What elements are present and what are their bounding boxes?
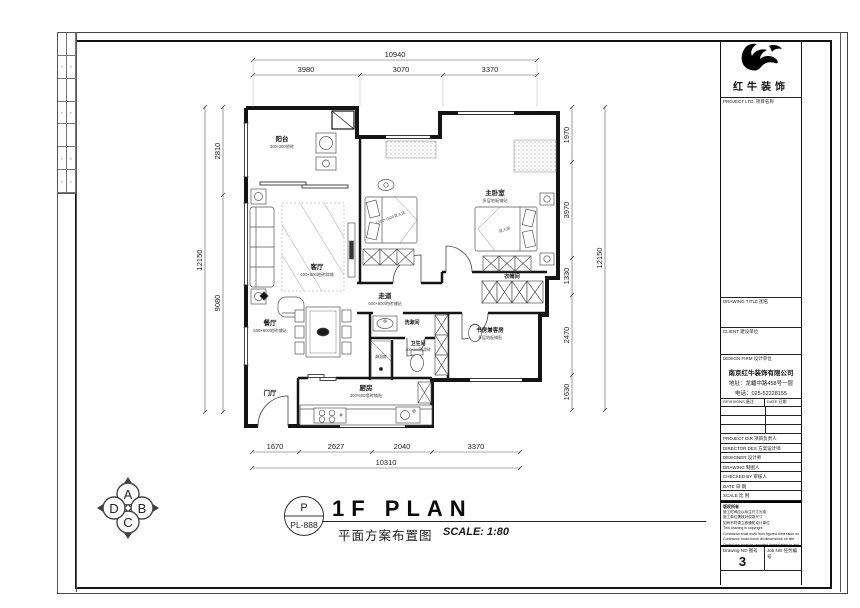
compass-rose: A B C D [96,476,160,540]
field-drawing-title: DRAWING TITLE 图名 [721,298,801,328]
svg-text:600×600地砖铺贴: 600×600地砖铺贴 [253,327,286,334]
sheet-right-line [840,32,841,592]
bay-windows [386,140,556,172]
tile-rug [282,203,344,291]
plan-scale: SCALE: 1:80 [443,526,509,538]
field-drawing-by: DRAWING 制图人 [721,463,801,473]
speaker-box [251,189,266,204]
revisions-date-label: DATE 日期 [765,399,801,406]
svg-text:300*300地砖: 300*300地砖 [270,143,294,150]
tv-panel [348,223,355,277]
title-underline [322,521,706,522]
strip-cell [58,79,76,102]
revisions-label: REVISIONS 备注 [721,399,765,406]
svg-text:2810: 2810 [213,143,222,160]
svg-text:书房兼客房: 书房兼客房 [476,326,504,334]
field-date: DATE 日 期 [721,482,801,492]
balcony-sink [316,157,336,170]
stool [378,180,394,191]
svg-text:淋浴房: 淋浴房 [375,354,387,359]
svg-text:10940: 10940 [385,50,406,59]
svg-text:D: D [109,501,118,516]
firm-logo-text: 红牛装饰 [721,78,801,93]
svg-text:1670: 1670 [267,442,284,451]
bull-logo-icon [733,40,789,76]
field-drawing-title-label: DRAWING TITLE 图名 [723,299,768,305]
svg-text:300*300防滑砖: 300*300防滑砖 [405,347,431,352]
svg-text:300*600墙砖铺贴: 300*600墙砖铺贴 [350,392,382,399]
floor-plan: 10940 3980 3070 3370 12150 2810 9080 197… [190,45,640,485]
strip-cell: ▪▪ [58,56,76,79]
room-labels: 阳台 300*300地砖 客厅 600×600地砖斜铺 主卧室 多层地板铺贴 走… [253,134,519,399]
svg-text:衣帽间: 衣帽间 [504,272,520,280]
drawing-number-row: Drawing NO 图号 3 Job NO 任务编号 [721,547,801,571]
plan-subtitle: 平面方案布置图 [338,525,433,544]
svg-text:多层地板铺贴: 多层地板铺贴 [482,197,507,204]
field-client: CLIENT 建设单位 [721,328,801,355]
revision-row [721,416,801,425]
firm-address: 地址：龙蟠中路458号一层 [721,379,801,387]
svg-text:客厅: 客厅 [310,262,325,271]
revisions-header: REVISIONS 备注 DATE 日期 [721,399,801,407]
revision-strip: ▪▪ ▪▪ ▪▪ ▪▪ [57,32,77,194]
toilet [411,350,424,372]
svg-text:PL-888: PL-888 [290,520,318,530]
svg-text:1970: 1970 [562,127,571,144]
plan-title: 1F PLAN [332,496,692,522]
firm-logo: 红牛装饰 [721,40,801,98]
fridge [418,382,431,403]
field-design-firm: DESIGN FIRM 设计单位 南京红牛装饰有限公司 地址：龙蟠中路458号一… [721,355,801,399]
svg-text:主卧室: 主卧室 [485,188,505,197]
wardrobe [363,249,414,265]
svg-text:2040: 2040 [394,442,411,451]
svg-text:B: B [138,501,147,516]
master-wardrobe [483,256,531,271]
svg-text:10310: 10310 [376,458,397,467]
svg-text:600×600地砖铺贴: 600×600地砖铺贴 [368,300,401,307]
revision-row [721,425,801,434]
svg-text:3370: 3370 [482,65,499,74]
title-block-spacer [721,571,801,586]
svg-text:9080: 9080 [213,295,222,312]
svg-text:3980: 3980 [298,65,315,74]
field-scale: SCALE 比 例 [721,491,801,501]
title-block: 红牛装饰 PROJECT LTD. 项目名称 DRAWING TITLE 图名 … [720,40,802,585]
strip-cell: ▪▪ [58,147,76,170]
entry-door [258,396,288,426]
field-project-label: PROJECT LTD. 项目名称 [723,99,774,105]
drawing-number: Drawing NO 图号 3 [721,547,765,570]
sofa [250,207,274,287]
svg-text:洗漱间: 洗漱间 [404,319,419,326]
svg-text:2470: 2470 [562,327,571,344]
kitchen-sink [396,407,420,423]
svg-text:3970: 3970 [562,202,571,219]
field-director-des: DIRECTOR DES 方案设计师 [721,444,801,454]
svg-text:3070: 3070 [393,65,410,74]
job-number: Job NO 任务编号 [765,547,801,570]
copyright-notes: 版权所有 施工时间应以标注尺寸为准 施工单位需核对现场尺寸 如有不符请立即通知设… [721,501,801,547]
dining-table [295,307,351,357]
svg-text:12150: 12150 [195,250,204,271]
svg-text:C: C [123,515,132,530]
svg-text:走道: 走道 [378,291,393,300]
washing-machine [316,133,336,153]
job-no-label: Job NO 任务编号 [767,548,801,560]
nightstand [540,253,554,265]
svg-text:餐厅: 餐厅 [263,318,278,327]
svg-text:600×600地砖斜铺: 600×600地砖斜铺 [300,271,333,278]
strip-cell: ▪▪ [58,170,76,193]
shower-stall [371,341,391,379]
drawing-no-label: Drawing NO 图号 [723,548,758,554]
field-checked-by: CHECKED BY 审核人 [721,472,801,482]
stove [314,408,346,423]
svg-text:多层地板铺贴: 多层地板铺贴 [478,334,502,340]
drawing-no-value: 3 [721,554,764,569]
field-project: PROJECT LTD. 项目名称 [721,98,801,298]
field-design-firm-label: DESIGN FIRM 设计单位 [723,356,772,362]
svg-text:厨房: 厨房 [360,383,374,392]
hall-cabinet [435,315,448,375]
field-client-label: CLIENT 建设单位 [723,329,758,335]
nightstand [540,193,554,205]
svg-text:P: P [300,502,307,514]
strip-cell: ▪▪ [58,102,76,125]
strip-cell [58,33,76,56]
plan-tag: P PL-888 [283,495,325,537]
cloak-wardrobe [482,281,543,303]
revision-strip-lower [57,192,77,592]
windows [244,111,523,429]
wash-basin [373,316,397,331]
svg-text:1630: 1630 [562,384,571,401]
field-project-dir: PROJECT DIR 项目负责人 [721,434,801,444]
svg-text:2627: 2627 [328,442,345,451]
firm-phone: 电话：025-52228155 [721,389,801,397]
svg-text:阳台: 阳台 [276,134,290,143]
doors [258,246,488,426]
svg-text:12150: 12150 [595,248,604,269]
revision-row [721,407,801,416]
svg-text:3370: 3370 [468,442,485,451]
svg-text:A: A [124,487,133,502]
svg-text:1330: 1330 [562,268,571,285]
svg-text:卫生间: 卫生间 [410,340,425,347]
firm-name: 南京红牛装饰有限公司 [721,367,801,377]
master-door [446,246,472,272]
field-designer: DESIGNER 设计师 [721,453,801,463]
svg-text:门厅: 门厅 [264,388,278,397]
strip-cell [58,124,76,147]
floor-drain [379,367,382,370]
